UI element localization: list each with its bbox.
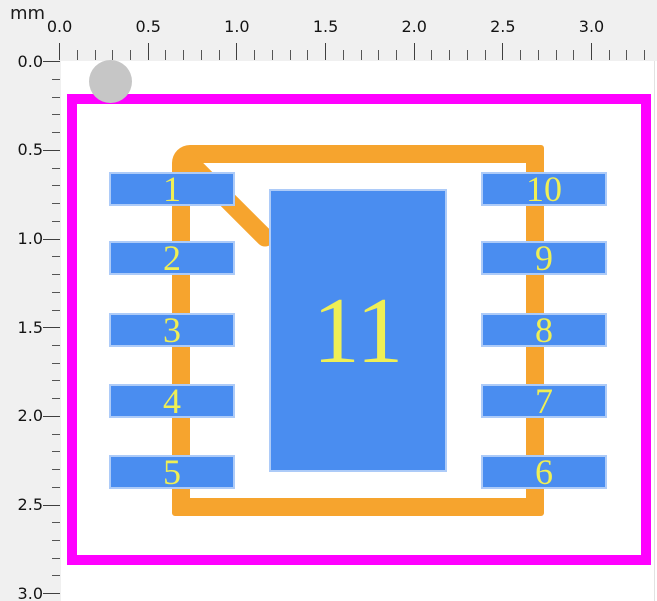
ruler-left-tick bbox=[52, 575, 60, 576]
ruler-top-tick bbox=[538, 50, 539, 60]
ruler-left-tick bbox=[52, 132, 60, 133]
pad-number: 7 bbox=[535, 383, 553, 419]
ruler-top-tick bbox=[485, 50, 486, 60]
ruler-left-tick bbox=[52, 97, 60, 98]
ruler-top-label: 1.0 bbox=[215, 17, 259, 37]
ruler-top-tick bbox=[77, 50, 78, 60]
ruler-left-tick bbox=[52, 522, 60, 523]
pad-3: 3 bbox=[109, 313, 235, 347]
pad-number: 4 bbox=[163, 383, 181, 419]
pad-number: 10 bbox=[526, 171, 562, 207]
pad-11: 11 bbox=[269, 189, 447, 472]
ruler-left-tick bbox=[43, 327, 60, 328]
ruler-left-tick bbox=[52, 451, 60, 452]
footprint-viewer: mm 0.00.51.01.52.02.53.00.00.51.01.52.02… bbox=[0, 0, 657, 601]
ruler-top-tick bbox=[254, 50, 255, 60]
ruler-left-tick bbox=[52, 540, 60, 541]
ruler-left-tick bbox=[52, 221, 60, 222]
ruler-left-label: 0.0 bbox=[1, 52, 43, 72]
pad-4: 4 bbox=[109, 384, 235, 418]
ruler-left-tick bbox=[52, 114, 60, 115]
ruler-top-tick bbox=[112, 50, 113, 60]
ruler-left-tick bbox=[52, 398, 60, 399]
ruler-top-tick bbox=[95, 50, 96, 60]
ruler-left-label: 1.0 bbox=[1, 229, 43, 249]
ruler-left-tick bbox=[43, 61, 60, 62]
canvas-edge-line bbox=[654, 61, 655, 601]
pad-number: 5 bbox=[163, 454, 181, 490]
ruler-left-label: 2.0 bbox=[1, 406, 43, 426]
ruler-top-tick bbox=[626, 50, 627, 60]
pad-number: 11 bbox=[313, 284, 404, 378]
ruler-left-label: 0.5 bbox=[1, 140, 43, 160]
ruler-left-tick bbox=[43, 505, 60, 506]
ruler-left-tick bbox=[43, 150, 60, 151]
ruler-top-tick bbox=[361, 50, 362, 60]
ruler-left-tick bbox=[43, 239, 60, 240]
ruler-top-tick bbox=[148, 43, 149, 60]
pad-8: 8 bbox=[481, 313, 607, 347]
ruler-left-tick bbox=[43, 416, 60, 417]
ruler-left-tick bbox=[52, 185, 60, 186]
pad-number: 2 bbox=[163, 240, 181, 276]
ruler-left-tick bbox=[52, 345, 60, 346]
ruler-top-tick bbox=[556, 50, 557, 60]
ruler-top-tick bbox=[449, 50, 450, 60]
ruler-left-label: 2.5 bbox=[1, 495, 43, 515]
ruler-left-tick bbox=[52, 256, 60, 257]
ruler-top-tick bbox=[520, 50, 521, 60]
pad-5: 5 bbox=[109, 455, 235, 489]
ruler-left-tick bbox=[43, 593, 60, 594]
ruler-left-tick bbox=[52, 469, 60, 470]
ruler-left-tick bbox=[52, 558, 60, 559]
ruler-top-tick bbox=[236, 43, 237, 60]
pad-1: 1 bbox=[109, 172, 235, 206]
ruler-top-label: 2.0 bbox=[392, 17, 436, 37]
pad-2: 2 bbox=[109, 241, 235, 275]
ruler-left-tick bbox=[52, 487, 60, 488]
ruler-top-label: 0.0 bbox=[38, 17, 82, 37]
ruler-left-tick bbox=[52, 363, 60, 364]
ruler-left-tick bbox=[52, 310, 60, 311]
ruler-top-tick bbox=[378, 50, 379, 60]
ruler-top-tick bbox=[414, 43, 415, 60]
pad-number: 8 bbox=[535, 312, 553, 348]
ruler-left-tick bbox=[52, 203, 60, 204]
pad-7: 7 bbox=[481, 384, 607, 418]
ruler-top-tick bbox=[165, 50, 166, 60]
ruler-left-tick bbox=[52, 292, 60, 293]
ruler-top-label: 2.5 bbox=[481, 17, 525, 37]
pin1-marker-dot bbox=[89, 60, 132, 103]
ruler-top-tick bbox=[130, 50, 131, 60]
ruler-top-tick bbox=[201, 50, 202, 60]
ruler-top-label: 3.0 bbox=[570, 17, 614, 37]
pad-number: 9 bbox=[535, 240, 553, 276]
ruler-top-label: 0.5 bbox=[126, 17, 170, 37]
pad-number: 1 bbox=[163, 171, 181, 207]
ruler-top-tick bbox=[272, 50, 273, 60]
ruler-top-tick bbox=[59, 43, 60, 60]
ruler-left-tick bbox=[52, 168, 60, 169]
ruler-top-tick bbox=[219, 50, 220, 60]
ruler-top-tick bbox=[467, 50, 468, 60]
ruler-top-tick bbox=[325, 43, 326, 60]
ruler-left-tick bbox=[52, 380, 60, 381]
pad-number: 3 bbox=[163, 312, 181, 348]
ruler-top-tick bbox=[502, 43, 503, 60]
ruler-left-tick bbox=[52, 79, 60, 80]
ruler-top-tick bbox=[290, 50, 291, 60]
ruler-top-tick bbox=[183, 50, 184, 60]
pad-9: 9 bbox=[481, 241, 607, 275]
ruler-top-tick bbox=[431, 50, 432, 60]
ruler-top-tick bbox=[307, 50, 308, 60]
ruler-top-tick bbox=[573, 50, 574, 60]
ruler-left-tick bbox=[52, 274, 60, 275]
ruler-top-tick bbox=[396, 50, 397, 60]
pad-10: 10 bbox=[481, 172, 607, 206]
pad-6: 6 bbox=[481, 455, 607, 489]
ruler-top-label: 1.5 bbox=[304, 17, 348, 37]
ruler-left-label: 1.5 bbox=[1, 318, 43, 338]
ruler-top-tick bbox=[644, 50, 645, 60]
ruler-top-tick bbox=[609, 50, 610, 60]
ruler-left-label: 3.0 bbox=[1, 584, 43, 601]
ruler-top-tick bbox=[343, 50, 344, 60]
ruler-top-tick bbox=[591, 43, 592, 60]
pad-number: 6 bbox=[535, 454, 553, 490]
ruler-left-tick bbox=[52, 434, 60, 435]
